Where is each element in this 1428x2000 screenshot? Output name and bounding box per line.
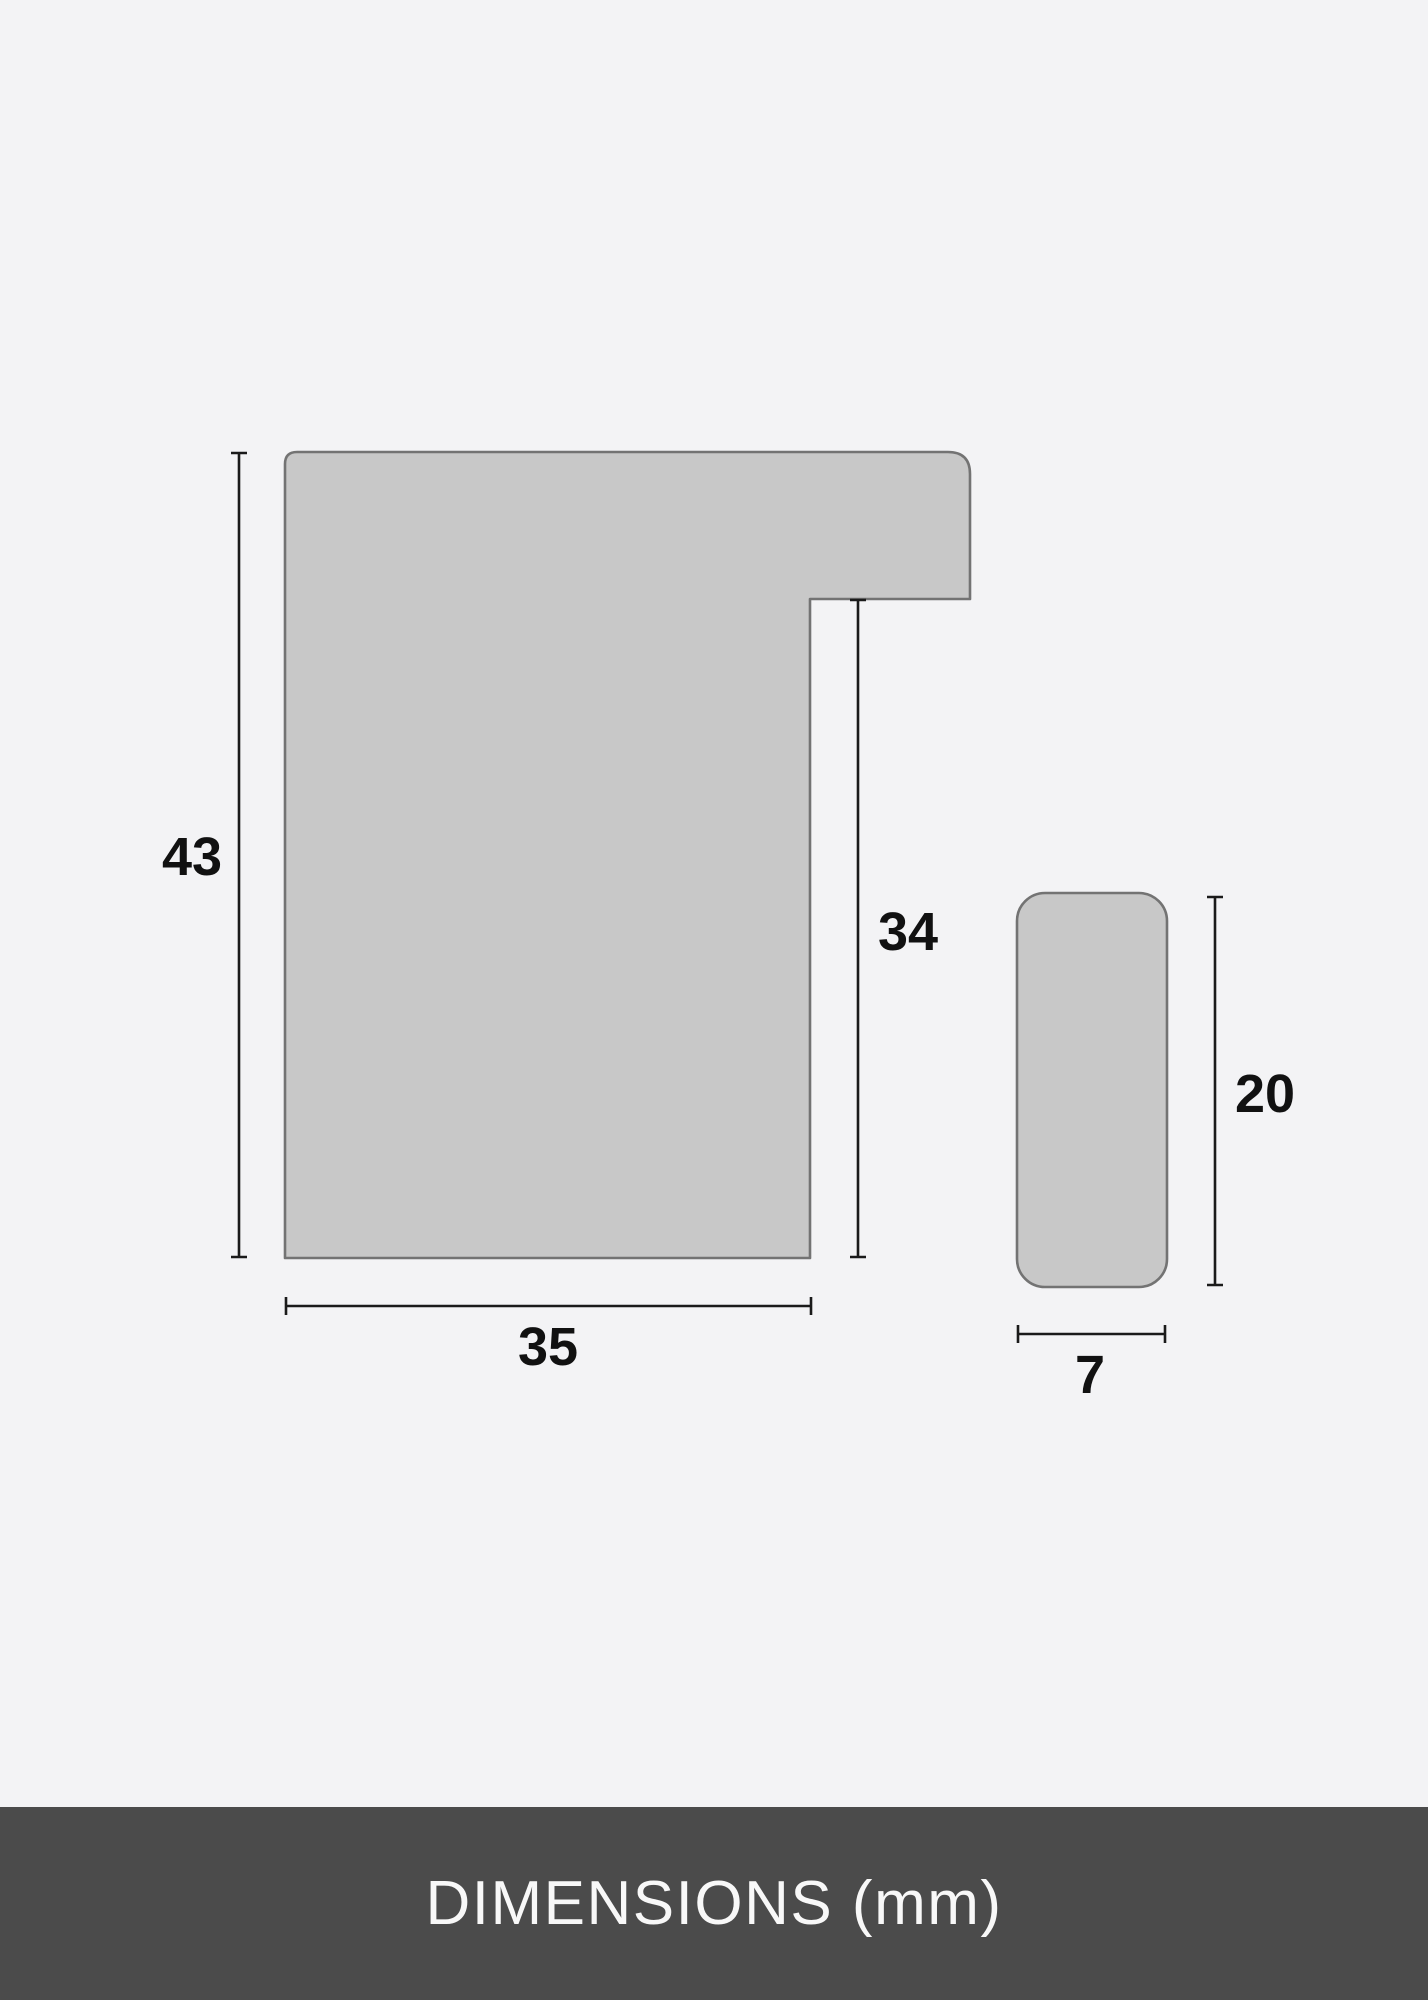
dim-line-spacer-width [1018, 1325, 1165, 1343]
dim-line-profile-height [231, 453, 247, 1257]
profile-dimensions-diagram: 43 34 35 20 7 [0, 0, 1428, 2000]
footer-title: DIMENSIONS (mm) [425, 1868, 1002, 1939]
spacer-shape [1017, 893, 1167, 1287]
footer-bar: DIMENSIONS (mm) [0, 1807, 1428, 2000]
dim-line-rabbet-depth [850, 600, 866, 1257]
dim-line-profile-width [286, 1297, 811, 1315]
dimension-diagram-page: 43 34 35 20 7 DIMENSIONS (mm) [0, 0, 1428, 2000]
label-rabbet-depth: 34 [878, 902, 938, 962]
label-profile-width: 35 [518, 1317, 578, 1377]
moulding-profile-shape [285, 452, 970, 1258]
label-spacer-height: 20 [1235, 1064, 1295, 1124]
label-profile-height: 43 [162, 827, 222, 887]
label-spacer-width: 7 [1075, 1345, 1105, 1405]
dim-line-spacer-height [1207, 897, 1223, 1285]
